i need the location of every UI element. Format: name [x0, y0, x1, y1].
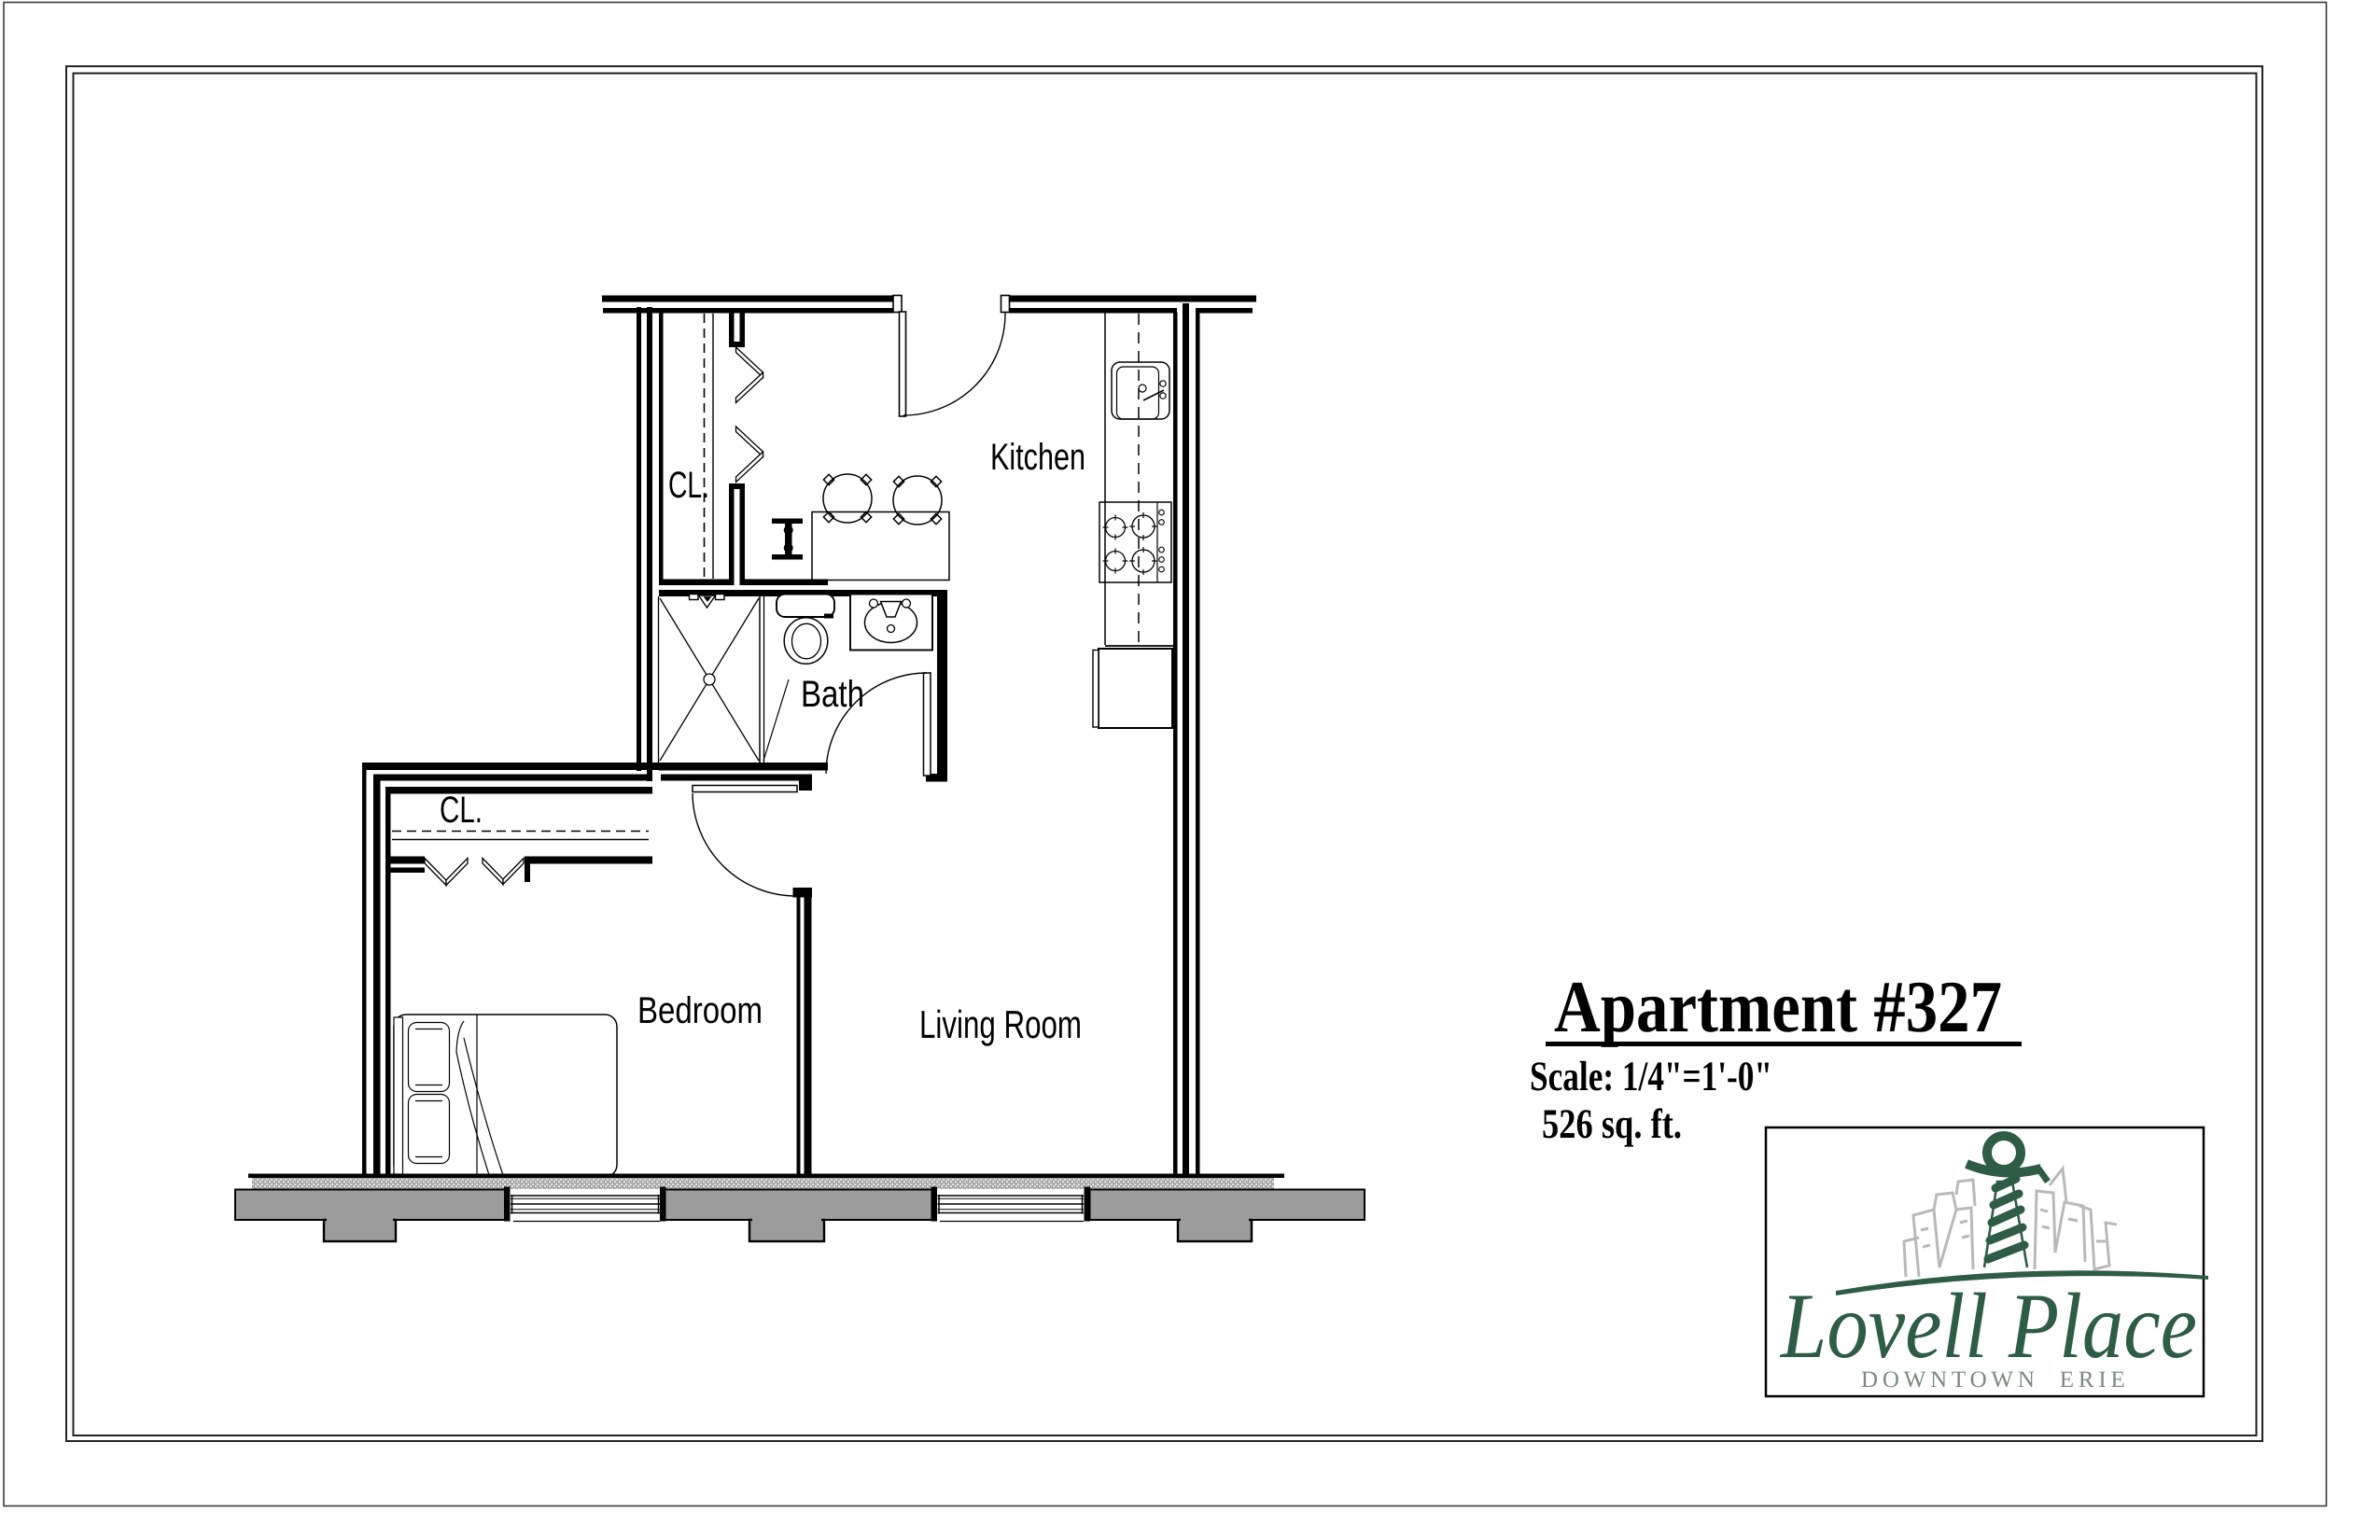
svg-text:DOWNTOWN ERIE: DOWNTOWN ERIE — [1861, 1367, 2130, 1393]
svg-text:526 sq. ft.: 526 sq. ft. — [1542, 1100, 1682, 1147]
svg-text:Lovell Place: Lovell Place — [1779, 1274, 2197, 1378]
svg-text:Living Room: Living Room — [919, 1002, 1082, 1046]
svg-text:CL.: CL. — [440, 790, 483, 831]
svg-text:CL.: CL. — [668, 465, 709, 506]
svg-text:Bath: Bath — [801, 674, 864, 715]
svg-text:Kitchen: Kitchen — [990, 437, 1085, 478]
svg-text:Apartment #327: Apartment #327 — [1554, 967, 2002, 1048]
svg-text:Scale: 1/4"=1'-0": Scale: 1/4"=1'-0" — [1530, 1053, 1772, 1099]
svg-text:Bedroom: Bedroom — [637, 990, 763, 1031]
